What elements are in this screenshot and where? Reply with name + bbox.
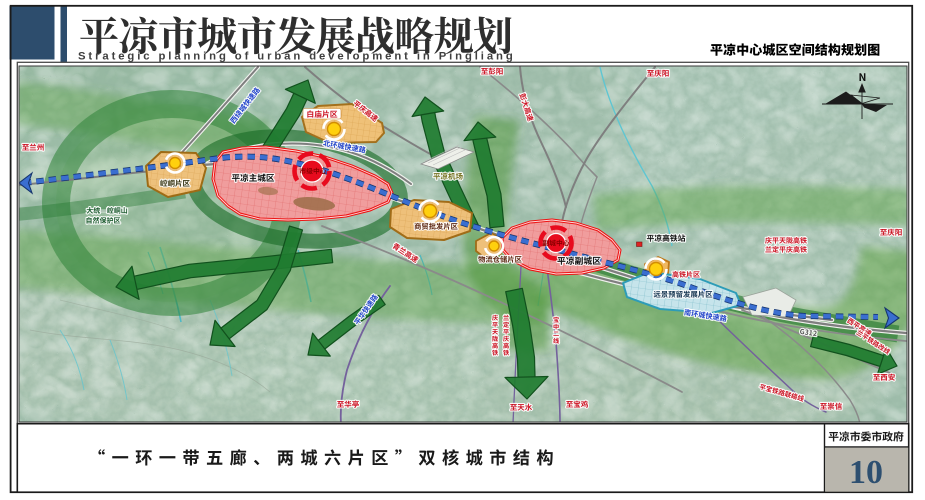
svg-text:10: 10 [849, 454, 883, 491]
svg-text:Strategic planning of urban de: Strategic planning of urban development … [78, 51, 516, 63]
